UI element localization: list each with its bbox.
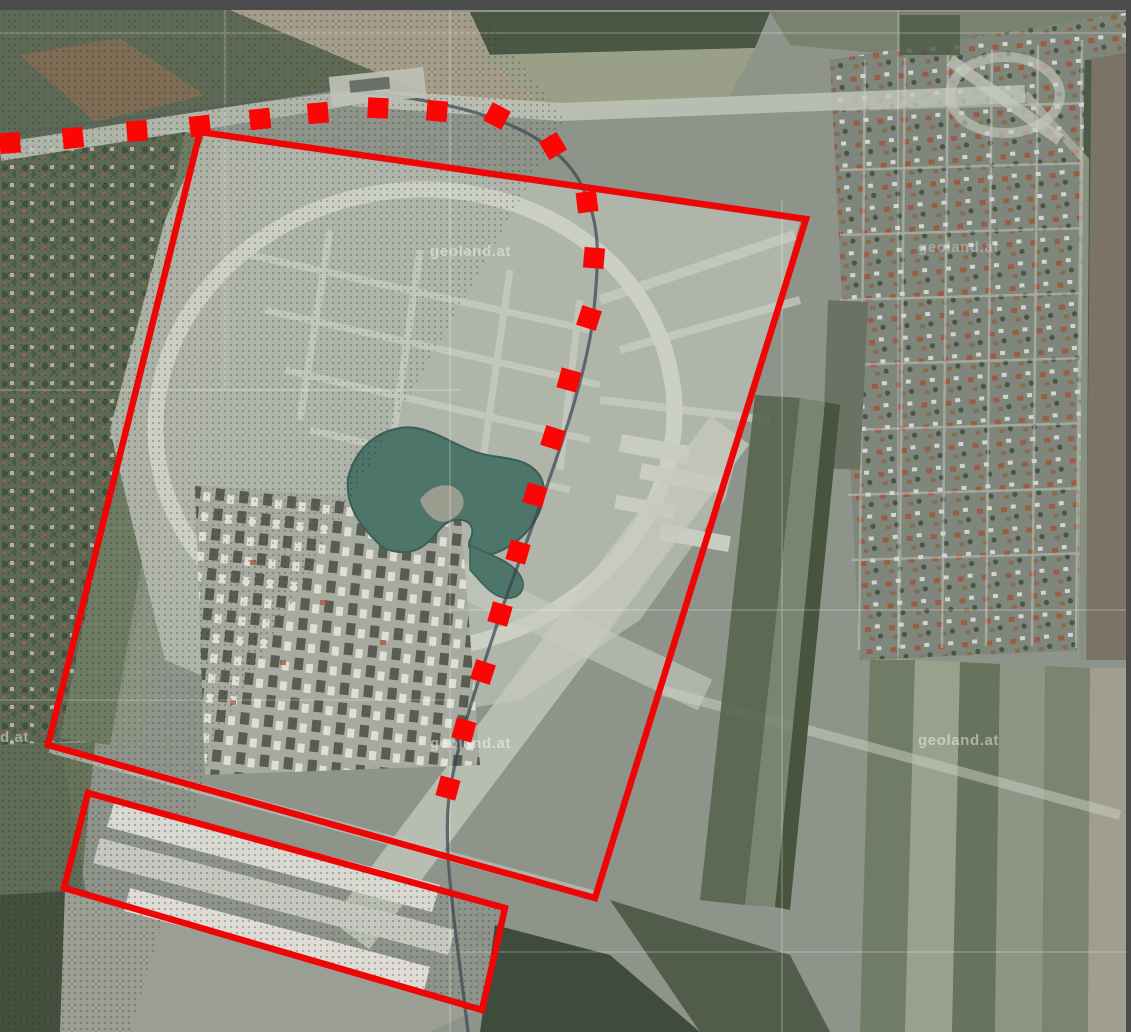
dashed-route-line xyxy=(426,100,448,122)
dashed-route-line xyxy=(126,120,148,142)
map-watermark: geoland.at xyxy=(430,243,511,260)
map-viewport[interactable]: geoland.atgeoland.atgeoland.atgeoland.at… xyxy=(0,0,1131,1032)
dashed-route-line xyxy=(62,127,85,150)
dashed-route-line xyxy=(0,132,21,154)
dashed-route-line xyxy=(249,108,272,131)
map-watermark: geoland.at xyxy=(918,239,999,256)
map-watermark: geoland.at xyxy=(0,729,29,746)
dashed-route-line xyxy=(307,102,329,124)
aerial-fields-southeast xyxy=(860,660,1131,1032)
dashed-route-line xyxy=(367,97,389,119)
map-window: geoland.atgeoland.atgeoland.atgeoland.at… xyxy=(0,0,1131,1032)
map-watermark: geoland.at xyxy=(918,732,999,749)
window-right-edge xyxy=(1126,0,1131,1032)
dashed-route-line xyxy=(583,247,605,269)
window-top-bar xyxy=(0,0,1131,10)
dashed-route-line xyxy=(189,115,212,138)
dashed-route-line xyxy=(576,191,599,214)
